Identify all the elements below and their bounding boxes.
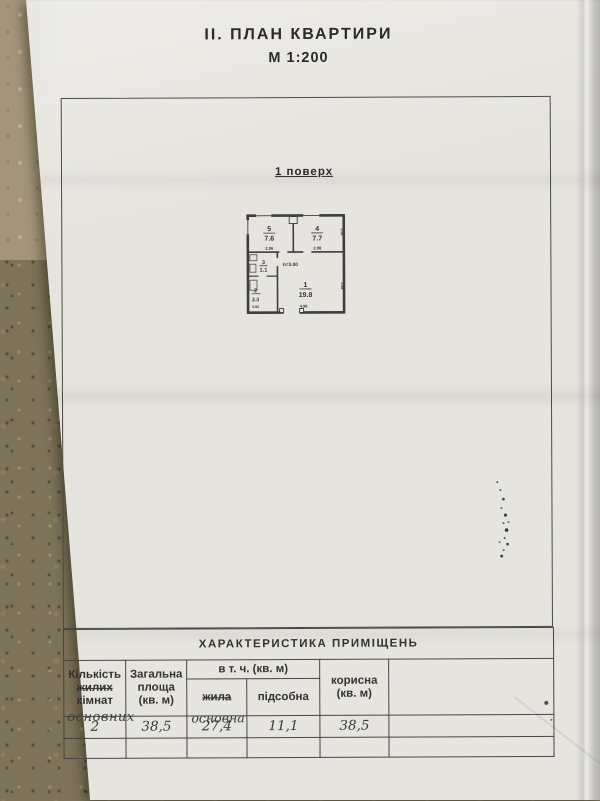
- room2-number: 2: [254, 288, 257, 294]
- entry-door-gap: [284, 311, 300, 315]
- fixture-cabinet: [250, 264, 256, 272]
- header-including-group: в т. ч. (кв. м): [187, 659, 320, 679]
- paper-specks: [544, 701, 548, 705]
- value-empty-cell: [389, 714, 554, 737]
- document-title: ІІ. ПЛАН КВАРТИРИ: [0, 25, 598, 46]
- ceiling-height-label: h=3.00: [283, 262, 298, 268]
- room3-number: 3: [262, 260, 265, 266]
- fixture-sink: [250, 255, 257, 261]
- header-living-area: жила основна: [187, 679, 247, 716]
- printed-content: ІІ. ПЛАН КВАРТИРИ М 1:200 1 поверх 5: [0, 0, 600, 801]
- value-total-area: 38,5: [126, 716, 187, 738]
- floor-plan-drawing: 5 7.6 2.96 4 7.7 2.98 2.58 3 1.1 h=3.00 …: [243, 206, 351, 320]
- header-total-area: Загальна площа (кв. м): [126, 660, 187, 716]
- room1-area: 19.8: [299, 292, 313, 299]
- room2-width-dim: 0.93: [252, 305, 259, 309]
- room1-number: 1: [304, 282, 308, 289]
- handwritten-osnovnykh: основних: [67, 711, 134, 724]
- header-useful-area: корисна (кв. м): [320, 659, 389, 715]
- room4-depth-dim: 2.58: [340, 228, 344, 235]
- paper-fold-edge: [576, 0, 600, 800]
- door-post-right: [300, 308, 304, 312]
- table-title: ХАРАКТЕРИСТИКА ПРИМІЩЕНЬ: [63, 627, 553, 660]
- header-room-count: Кількість жилих кімнат основних: [64, 660, 126, 716]
- handwritten-osnovna: основна: [191, 711, 244, 724]
- premises-characteristics-table: ХАРАКТЕРИСТИКА ПРИМІЩЕНЬ Кількість жилих…: [63, 627, 555, 759]
- room4-area: 7.7: [312, 235, 322, 242]
- room5-number: 5: [267, 226, 271, 233]
- room4-number: 4: [315, 226, 319, 233]
- value-useful-area: 38,5: [320, 715, 389, 737]
- room2-area: 2.3: [252, 297, 259, 303]
- room5-area: 7.6: [264, 236, 274, 243]
- vent-shaft: [289, 217, 297, 224]
- room5-width-dim: 2.96: [265, 246, 274, 251]
- document-scale: М 1:200: [0, 49, 599, 68]
- room3-area: 1.1: [260, 268, 268, 274]
- room1-width-dim: 4.98: [300, 303, 309, 308]
- value-utility-area: 11,1: [247, 715, 320, 737]
- room1-depth-dim: 3.98: [340, 282, 344, 289]
- header-utility-area: підсобна: [247, 678, 320, 715]
- blue-ink-speckles: [496, 481, 498, 483]
- floor-label: 1 поверх: [249, 166, 359, 178]
- door-post-left: [280, 309, 284, 313]
- room4-width-dim: 2.98: [313, 245, 322, 250]
